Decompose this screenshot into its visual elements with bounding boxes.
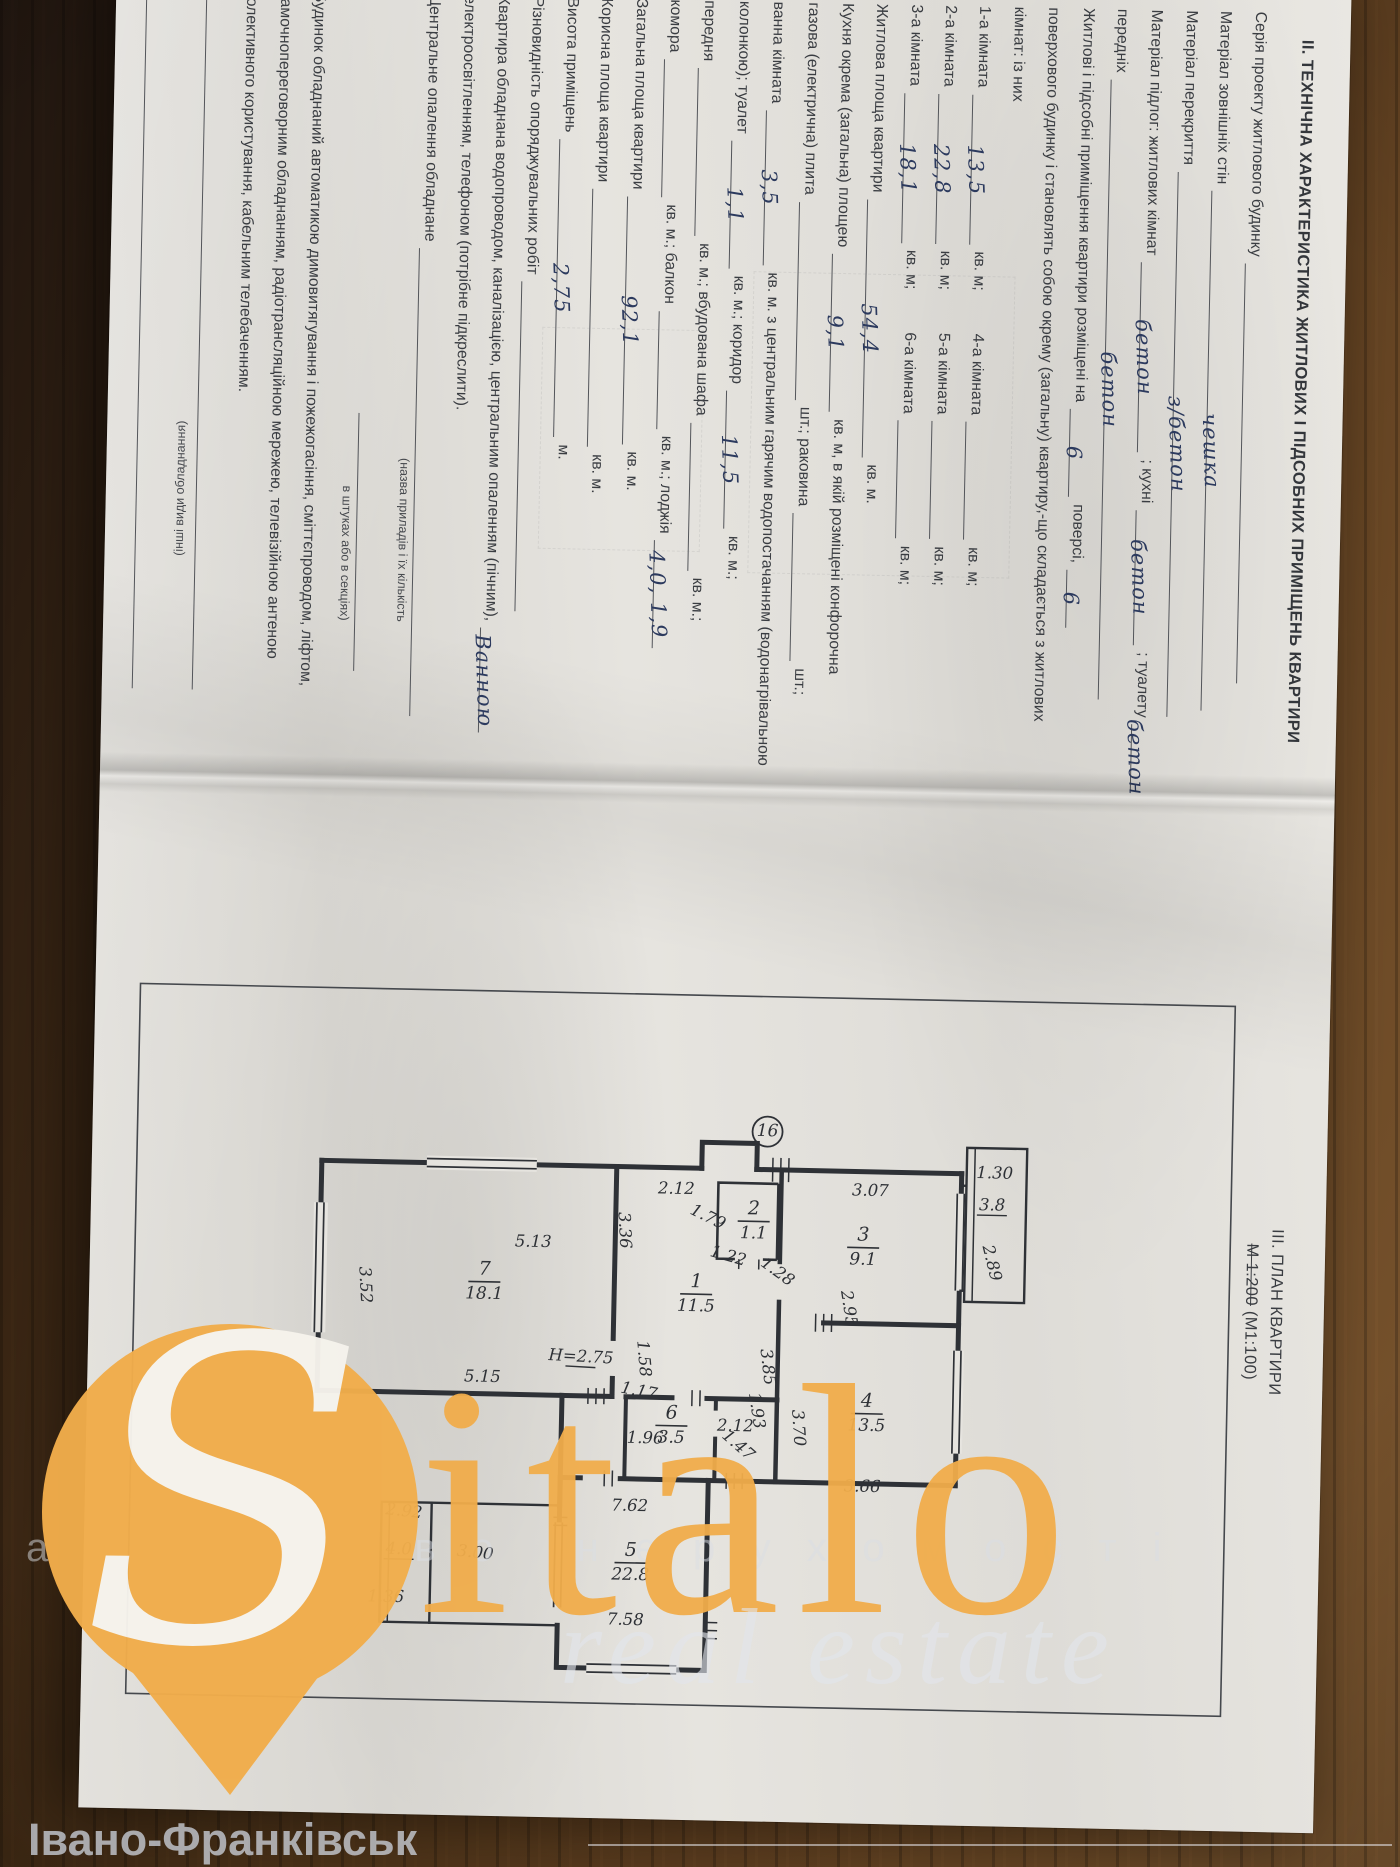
dimension-label: 5.15 xyxy=(464,1366,501,1386)
dimension-label: 1.22 xyxy=(708,1241,749,1269)
svg-text:18.1: 18.1 xyxy=(465,1283,503,1304)
form-blank-rule: 6 xyxy=(1065,570,1087,628)
form-blank-rule: бетон xyxy=(1137,262,1162,452)
svg-text:2: 2 xyxy=(747,1197,761,1219)
dimension-label: 2.12 xyxy=(657,1178,695,1198)
form-blank-rule: 6 xyxy=(1068,409,1091,497)
dimension-label: 1.96 xyxy=(627,1428,664,1448)
plan-frame xyxy=(126,983,1236,1716)
handwritten-value: Ванною xyxy=(471,634,498,727)
form-label: Матеріал підлог: житлових кімнат xyxy=(1141,9,1165,260)
handwritten-value: бетон xyxy=(1126,539,1152,616)
paper-spread: ІІ. ТЕХНІЧНА ХАРАКТЕРИСТИКА ЖИТЛОВИХ І П… xyxy=(78,0,1351,1833)
svg-text:16: 16 xyxy=(757,1121,779,1141)
dimension-label: 5.13 xyxy=(515,1231,552,1251)
page-apartment-plan: ІІІ. ПЛАН КВАРТИРИ М 1:200 (М1:100) xyxy=(78,768,1335,1834)
form-blank-rule xyxy=(794,202,819,400)
svg-text:3.85: 3.85 xyxy=(756,1348,779,1387)
form-blank-rule xyxy=(695,68,720,236)
svg-text:1.79: 1.79 xyxy=(687,1200,728,1233)
form-label: шт.; xyxy=(788,668,808,700)
dimension-label: 3.85 xyxy=(756,1348,779,1387)
section2-title: ІІ. ТЕХНІЧНА ХАРАКТЕРИСТИКА ЖИТЛОВИХ І П… xyxy=(1282,9,1317,775)
handwritten-value: 54,4 xyxy=(857,303,883,354)
form-label: ; кухні xyxy=(1136,459,1156,508)
dimension-label: 3.66 xyxy=(844,1476,881,1496)
dimension-label: 3.07 xyxy=(852,1180,890,1200)
city-watermark-text: Івано-Франківськ xyxy=(28,1814,417,1866)
form-blank-rule: Ванною xyxy=(478,628,501,733)
form-blank-rule: 1,1 xyxy=(728,140,752,268)
form-blank-rule xyxy=(661,59,685,197)
svg-text:7.58: 7.58 xyxy=(607,1609,644,1629)
dimension-label: 7.58 xyxy=(607,1609,644,1629)
form-label: колонкою); туалет xyxy=(731,1,753,139)
form-label: кв. м.; вбудована шафа xyxy=(691,243,714,421)
room-label: 522.8 xyxy=(610,1538,650,1585)
handwritten-value: 92,1 xyxy=(616,295,642,346)
form-blank-rule: 11,5 xyxy=(723,391,747,529)
handwritten-value: 1,1 xyxy=(722,186,747,223)
form-label: шт.; раковина xyxy=(792,407,813,512)
form-blank-rule xyxy=(963,422,986,540)
svg-text:2.12: 2.12 xyxy=(657,1178,695,1198)
form-label: комора xyxy=(664,0,684,58)
svg-text:3.07: 3.07 xyxy=(852,1180,890,1200)
watermark-underline xyxy=(588,1844,1392,1846)
dimension-label: 2.92 xyxy=(384,1499,424,1522)
form-label: кв. м.; коридор xyxy=(726,275,747,389)
form-blank-rule xyxy=(353,413,379,671)
form-label: 6-а кімната xyxy=(897,332,918,419)
form-blank-rule: бетон xyxy=(1133,510,1157,645)
dimension-label: 1.30 xyxy=(976,1163,1013,1183)
form-blank-rule xyxy=(587,189,613,447)
dimension-label: 3.36 xyxy=(615,1211,636,1249)
form-blank-rule: 54,4 xyxy=(862,199,888,457)
form-label: Матеріал перекриття xyxy=(1178,10,1200,170)
dimension-label: 1.79 xyxy=(687,1200,728,1233)
svg-text:9.1: 9.1 xyxy=(849,1249,876,1270)
form-label: кв. м. xyxy=(861,464,881,509)
form-label: кв. м, в якій розміщені конфорочна xyxy=(823,419,847,680)
form-label: кв. м.; xyxy=(722,536,742,585)
svg-text:3.36: 3.36 xyxy=(615,1211,636,1249)
svg-text:5.13: 5.13 xyxy=(515,1231,552,1251)
svg-text:1.36: 1.36 xyxy=(367,1586,404,1606)
handwritten-value: 9,1 xyxy=(823,315,848,352)
dimension-label: 3.52 xyxy=(355,1266,376,1304)
form-label: передніх xyxy=(1111,9,1131,78)
svg-text:H=2.75: H=2.75 xyxy=(547,1345,614,1368)
form-label: 3-а кімната xyxy=(904,4,925,91)
svg-text:1.28: 1.28 xyxy=(757,1253,798,1290)
form-label: ; туалету xyxy=(1132,652,1152,723)
form-label: 1-а кімната xyxy=(973,6,994,93)
svg-text:1.58: 1.58 xyxy=(633,1339,655,1377)
svg-text:3: 3 xyxy=(857,1224,870,1246)
handwritten-value: з/бетон xyxy=(1163,395,1190,493)
form-label: кв. м; xyxy=(934,250,954,295)
dimension-label: 1.28 xyxy=(757,1253,798,1290)
form-label: кв. м. xyxy=(586,454,606,499)
room-label: 718.1 xyxy=(465,1257,504,1304)
form-label: 2-а кімната xyxy=(938,5,959,92)
form-label: Центральне опалення обладнане xyxy=(419,0,443,247)
form-label: Житлова площа квартири xyxy=(867,4,890,198)
svg-text:11.5: 11.5 xyxy=(677,1296,715,1317)
handwritten-value: 6 xyxy=(1061,446,1085,461)
room-label: 39.1 xyxy=(847,1223,880,1270)
form-lines: Серія проекту житлового будинкуМатеріал … xyxy=(130,0,1285,792)
form-label: кв. м; xyxy=(969,251,989,296)
svg-text:3.66: 3.66 xyxy=(844,1476,881,1496)
room-label: 111.5 xyxy=(677,1270,716,1317)
form-blank-rule xyxy=(929,421,952,539)
form-label: ванна кімната xyxy=(766,1,787,108)
floor-plan-drawing: 16 111.521.139.1413.5522.863.5718.12.123… xyxy=(78,768,1335,1834)
form-blank-rule xyxy=(895,421,918,539)
form-blank-rule xyxy=(789,513,813,661)
form-label: передня xyxy=(698,0,718,66)
form-blank-rule: 9,1 xyxy=(829,254,853,412)
svg-text:1.1: 1.1 xyxy=(740,1223,767,1244)
svg-text:6: 6 xyxy=(665,1402,678,1424)
svg-text:3.52: 3.52 xyxy=(355,1266,376,1304)
form-label: Висота приміщень xyxy=(559,0,581,138)
dimension-label: 3.70 xyxy=(788,1409,809,1447)
dimension-label: 3.8 xyxy=(977,1195,1007,1216)
form-blank-rule: 13,5 xyxy=(970,94,994,244)
form-label: кв. м; xyxy=(962,547,982,592)
form-label: Кухня окрема (загальна) площею xyxy=(832,3,856,253)
room-label: 21.1 xyxy=(737,1197,770,1244)
form-label: Матеріал зовнішніх стін xyxy=(1212,11,1235,190)
form-blank-rule: 92,1 xyxy=(622,196,648,444)
dimension-label: 2.89 xyxy=(978,1242,1005,1283)
svg-text:22.8: 22.8 xyxy=(610,1564,649,1585)
svg-text:1: 1 xyxy=(690,1270,703,1292)
form-label: газова (електрична) плита xyxy=(799,2,822,200)
svg-text:1.96: 1.96 xyxy=(627,1428,664,1448)
svg-text:3.00: 3.00 xyxy=(456,1541,495,1564)
svg-text:4.0: 4.0 xyxy=(384,1539,412,1559)
form-label: кв. м. xyxy=(620,451,640,496)
svg-text:2.89: 2.89 xyxy=(978,1242,1005,1283)
form-label: Загальна площа квартири xyxy=(627,0,650,195)
dimension-label: 1.58 xyxy=(633,1339,655,1377)
form-label: кв. м; xyxy=(900,250,920,295)
form-blank-rule xyxy=(656,311,679,429)
form-label: 4-а кімната xyxy=(966,334,987,421)
svg-text:13.5: 13.5 xyxy=(847,1415,885,1436)
photo-of-document: ІІ. ТЕХНІЧНА ХАРАКТЕРИСТИКА ЖИТЛОВИХ І П… xyxy=(0,0,1400,1867)
dimension-label: H=2.75 xyxy=(547,1345,614,1369)
form-blank-rule: 22,8 xyxy=(935,94,959,244)
page-technical-characteristics: ІІ. ТЕХНІЧНА ХАРАКТЕРИСТИКА ЖИТЛОВИХ І П… xyxy=(100,0,1352,793)
form-label: кв. м.; xyxy=(686,577,706,626)
form-blank-rule xyxy=(132,0,168,689)
svg-text:4: 4 xyxy=(860,1390,874,1412)
handwritten-value: 2,75 xyxy=(548,263,574,314)
handwritten-value: 18,1 xyxy=(895,142,921,193)
form-label: м. xyxy=(552,444,571,465)
form-label: кв. м; xyxy=(928,546,948,591)
form-label: поверсі, xyxy=(1066,504,1086,568)
room-label: 413.5 xyxy=(847,1389,886,1436)
svg-text:1.22: 1.22 xyxy=(708,1241,749,1269)
svg-text:7.62: 7.62 xyxy=(611,1495,648,1515)
handwritten-value: 13,5 xyxy=(963,144,989,195)
dimension-label: 4.0 xyxy=(384,1539,414,1560)
form-label: 5-а кімната xyxy=(932,333,953,420)
handwritten-value: бетон xyxy=(1131,319,1157,396)
svg-text:5.15: 5.15 xyxy=(464,1366,501,1386)
handwritten-value: 6 xyxy=(1058,591,1082,606)
form-blank-rule: 4,0, 1,9 xyxy=(652,540,675,648)
dimension-label: 3.00 xyxy=(456,1541,495,1564)
form-label: кв. м.; балкон xyxy=(659,204,680,309)
handwritten-value: 11,5 xyxy=(717,434,743,485)
svg-text:2.92: 2.92 xyxy=(384,1499,424,1522)
chimney-mark: 16 xyxy=(752,1116,783,1147)
svg-text:3.70: 3.70 xyxy=(788,1409,809,1447)
dimension-label: 7.62 xyxy=(611,1495,648,1515)
handwritten-value: чешка xyxy=(1198,413,1224,489)
svg-text:1.30: 1.30 xyxy=(976,1163,1013,1183)
form-label: Корисна площа квартири xyxy=(592,0,615,188)
form-label: Серія проекту житлового будинку xyxy=(1245,12,1269,262)
handwritten-value: 22,8 xyxy=(929,143,955,194)
form-label: кв. м.; лоджія xyxy=(654,436,675,539)
svg-text:5: 5 xyxy=(625,1539,638,1561)
handwritten-value: 3,5 xyxy=(757,169,782,206)
handwritten-value: бетон xyxy=(1096,351,1122,428)
form-blank-rule: 18,1 xyxy=(901,93,925,243)
handwritten-value: 4,0, 1,9 xyxy=(644,550,671,639)
form-label: кімнат: із них xyxy=(1007,6,1028,106)
form-blank-rule xyxy=(688,422,712,570)
form-blank-rule: 3,5 xyxy=(763,110,787,265)
form-label: кв. м; xyxy=(894,546,914,591)
dimension-label: 1.36 xyxy=(367,1586,404,1606)
svg-text:7: 7 xyxy=(478,1258,491,1280)
svg-text:3.8: 3.8 xyxy=(979,1195,1006,1215)
